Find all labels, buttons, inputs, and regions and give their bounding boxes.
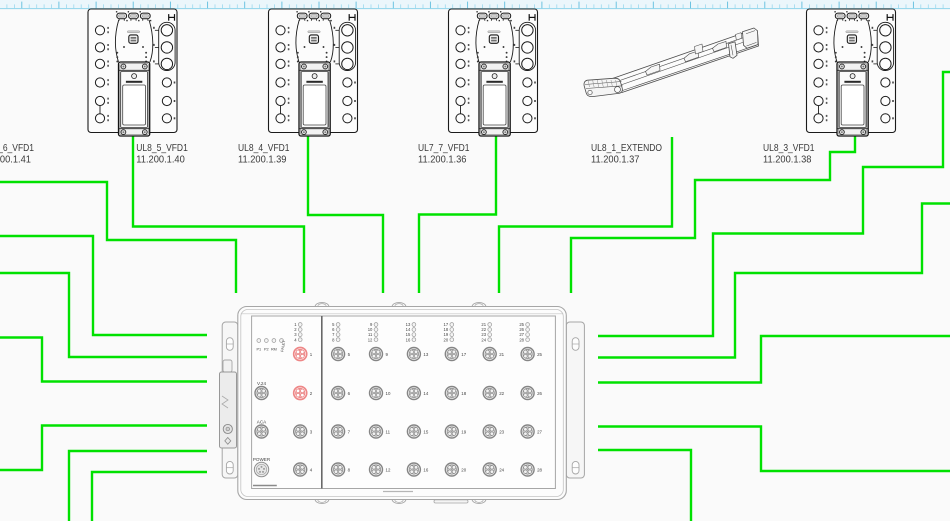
svg-text:21: 21 [499, 352, 504, 357]
svg-text:11.200.1.39: 11.200.1.39 [238, 154, 287, 166]
svg-text:20: 20 [444, 337, 449, 342]
svg-text:ACA: ACA [257, 420, 267, 425]
svg-text:24: 24 [481, 337, 486, 342]
svg-text:UL8_3_VFD1: UL8_3_VFD1 [763, 142, 815, 154]
svg-text:11.200.1.41: 11.200.1.41 [0, 154, 31, 166]
svg-text:13: 13 [423, 352, 428, 357]
svg-text:11.200.1.36: 11.200.1.36 [418, 154, 467, 166]
svg-text:19: 19 [461, 429, 466, 434]
svg-text:18: 18 [461, 391, 466, 396]
svg-text:24: 24 [499, 467, 504, 472]
svg-text:UL8_5_VFD1: UL8_5_VFD1 [136, 142, 188, 154]
svg-text:11: 11 [386, 429, 391, 434]
svg-text:17: 17 [461, 352, 466, 357]
svg-text:12: 12 [368, 337, 373, 342]
svg-text:15: 15 [423, 429, 428, 434]
svg-text:UL8_1_EXTENDO: UL8_1_EXTENDO [591, 142, 662, 154]
svg-text:UL8_4_VFD1: UL8_4_VFD1 [238, 142, 290, 154]
svg-text:12: 12 [386, 467, 391, 472]
svg-text:POWER: POWER [253, 457, 271, 462]
svg-text:16: 16 [423, 467, 428, 472]
svg-text:25: 25 [537, 352, 542, 357]
svg-text:11.200.1.40: 11.200.1.40 [136, 154, 185, 166]
svg-text:RM: RM [271, 348, 277, 352]
svg-text:28: 28 [537, 467, 542, 472]
svg-text:UL7_7_VFD1: UL7_7_VFD1 [418, 142, 470, 154]
svg-text:P1: P1 [256, 348, 261, 352]
svg-text:11.200.1.37: 11.200.1.37 [591, 154, 640, 166]
svg-text:23: 23 [499, 429, 504, 434]
svg-text:20: 20 [461, 467, 466, 472]
svg-text:UL8_6_VFD1: UL8_6_VFD1 [0, 142, 34, 154]
svg-text:28: 28 [519, 337, 524, 342]
svg-text:P2: P2 [264, 348, 269, 352]
svg-text:V.24: V.24 [257, 381, 266, 386]
svg-text:22: 22 [499, 391, 504, 396]
svg-text:16: 16 [406, 337, 411, 342]
svg-text:11.200.1.38: 11.200.1.38 [763, 154, 812, 166]
svg-text:26: 26 [537, 391, 542, 396]
svg-text:14: 14 [423, 391, 428, 396]
svg-text:10: 10 [386, 391, 391, 396]
svg-text:27: 27 [537, 429, 542, 434]
